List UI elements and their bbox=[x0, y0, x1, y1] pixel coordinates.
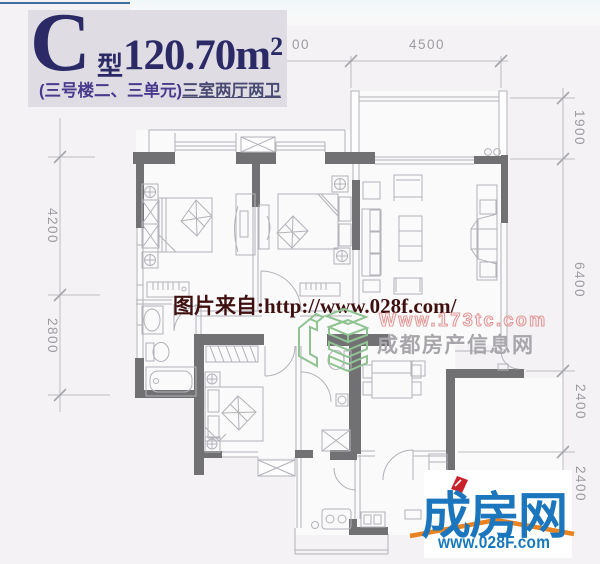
svg-text:4200: 4200 bbox=[45, 208, 60, 244]
svg-text:00: 00 bbox=[292, 37, 310, 52]
svg-text:2400: 2400 bbox=[573, 384, 588, 420]
svg-text:4500: 4500 bbox=[409, 37, 445, 52]
svg-text:2800: 2800 bbox=[45, 318, 60, 354]
svg-text:1900: 1900 bbox=[572, 110, 587, 146]
svg-text:2400: 2400 bbox=[573, 466, 588, 502]
svg-text:6400: 6400 bbox=[572, 262, 587, 298]
